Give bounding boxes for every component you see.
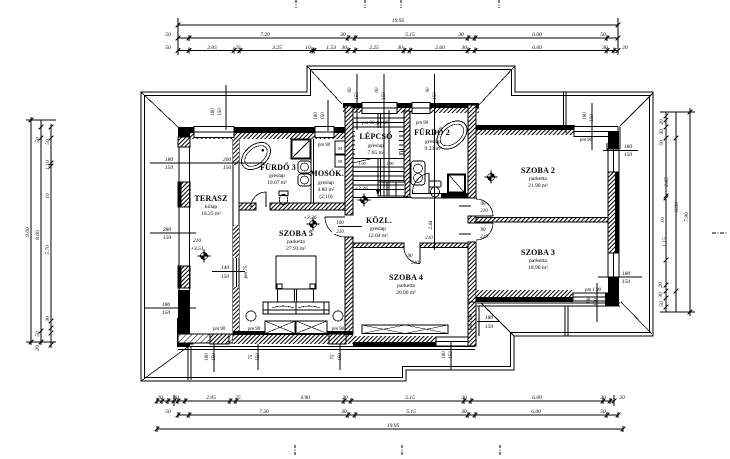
svg-text:parketta: parketta	[287, 239, 305, 245]
svg-text:30: 30	[460, 409, 467, 415]
svg-text:20: 20	[619, 395, 625, 401]
svg-text:60: 60	[375, 87, 380, 93]
svg-text:6.00: 6.00	[532, 32, 542, 38]
svg-text:20.60 m²: 20.60 m²	[396, 290, 416, 296]
svg-text:50: 50	[35, 137, 41, 143]
svg-text:150: 150	[321, 112, 326, 120]
svg-text:90: 90	[408, 254, 414, 259]
svg-text:SZOBA 4: SZOBA 4	[389, 273, 423, 282]
svg-text:7.20: 7.20	[260, 32, 270, 38]
svg-text:210: 210	[425, 236, 433, 241]
svg-text:30: 30	[339, 32, 346, 38]
svg-text:50: 50	[45, 139, 51, 145]
svg-text:30: 30	[341, 395, 348, 401]
svg-text:150: 150	[212, 353, 217, 361]
svg-text:180: 180	[583, 112, 588, 120]
svg-text:greslap: greslap	[318, 180, 334, 186]
svg-text:LÉPCSŐ: LÉPCSŐ	[359, 131, 392, 141]
svg-text:18.25 m²: 18.25 m²	[201, 211, 221, 217]
svg-text:FÜRDŐ 2: FÜRDŐ 2	[414, 127, 450, 137]
svg-text:SZOBA 2: SZOBA 2	[521, 166, 555, 175]
svg-text:25: 25	[235, 45, 241, 51]
svg-text:10: 10	[660, 217, 666, 223]
svg-text:2.60: 2.60	[435, 45, 445, 51]
svg-text:1.90: 1.90	[387, 161, 394, 166]
svg-text:5.15: 5.15	[405, 32, 415, 38]
svg-text:210: 210	[411, 261, 419, 266]
svg-text:180: 180	[165, 157, 174, 163]
svg-text:1.15: 1.15	[662, 237, 668, 247]
svg-text:30: 30	[658, 292, 664, 299]
svg-text:30: 30	[340, 409, 347, 415]
svg-text:kőlap: kőlap	[205, 204, 217, 210]
svg-text:180: 180	[211, 108, 216, 116]
svg-text:20: 20	[622, 45, 628, 51]
svg-text:7.20: 7.20	[259, 409, 269, 415]
svg-text:6.00: 6.00	[532, 45, 542, 51]
svg-text:+3.51: +3.51	[190, 246, 204, 252]
svg-text:parketta: parketta	[397, 283, 415, 289]
svg-text:2.44: 2.44	[429, 220, 434, 229]
svg-text:180: 180	[314, 112, 319, 120]
svg-text:6.00: 6.00	[531, 409, 541, 415]
svg-text:greslap: greslap	[269, 173, 285, 179]
svg-text:greslap: greslap	[370, 226, 386, 232]
svg-text:150: 150	[355, 92, 360, 100]
svg-text:150: 150	[590, 114, 595, 122]
svg-text:18.90 m²: 18.90 m²	[528, 265, 548, 271]
svg-text:75: 75	[249, 354, 254, 360]
svg-text:50: 50	[165, 32, 171, 38]
svg-text:pm 75: pm 75	[244, 265, 249, 279]
svg-text:2.05: 2.05	[207, 45, 217, 51]
svg-text:1.00: 1.00	[359, 161, 366, 166]
svg-text:pm 90 pm 90: pm 90 pm 90	[361, 121, 388, 126]
svg-text:9.60: 9.60	[25, 227, 31, 237]
svg-text:10.07 m²: 10.07 m²	[267, 180, 287, 186]
svg-text:50: 50	[600, 409, 606, 415]
svg-text:pm 90: pm 90	[212, 327, 226, 332]
svg-text:210: 210	[193, 238, 202, 244]
svg-text:parketta: parketta	[529, 258, 547, 264]
svg-text:M: M	[338, 146, 342, 151]
svg-text:50: 50	[338, 159, 343, 164]
svg-text:200: 200	[223, 157, 232, 163]
svg-text:50: 50	[165, 45, 171, 51]
svg-text:150: 150	[221, 274, 230, 280]
svg-text:10: 10	[305, 45, 311, 51]
svg-text:75: 75	[331, 354, 336, 360]
svg-text:SZOBA 3: SZOBA 3	[521, 248, 555, 257]
svg-text:180: 180	[162, 302, 171, 308]
svg-text:50: 50	[165, 409, 171, 415]
svg-text:150: 150	[594, 298, 599, 306]
svg-text:150: 150	[485, 324, 494, 330]
svg-text:30: 30	[460, 395, 467, 401]
svg-text:90: 90	[426, 87, 431, 93]
svg-text:20: 20	[157, 395, 163, 401]
svg-text:150: 150	[433, 92, 438, 100]
svg-text:3.25: 3.25	[271, 45, 282, 51]
svg-text:150: 150	[165, 165, 174, 171]
svg-text:pm 90: pm 90	[415, 121, 429, 126]
svg-text:8.60: 8.60	[35, 230, 41, 240]
svg-text:2.65: 2.65	[664, 177, 670, 187]
svg-text:50: 50	[659, 140, 665, 146]
svg-text:6.90: 6.90	[674, 202, 680, 212]
svg-text:21.90 m²: 21.90 m²	[528, 183, 548, 189]
svg-text:parketta: parketta	[529, 176, 547, 182]
svg-text:180: 180	[624, 144, 633, 150]
svg-text:60: 60	[348, 87, 353, 93]
svg-text:150: 150	[218, 108, 223, 116]
svg-text:2.05: 2.05	[206, 395, 216, 401]
svg-text:180: 180	[587, 296, 592, 304]
svg-text:20: 20	[659, 119, 665, 125]
svg-text:7.90: 7.90	[684, 212, 690, 222]
svg-text:150: 150	[624, 152, 633, 158]
svg-text:5.15: 5.15	[405, 395, 415, 401]
svg-text:7.65 m²: 7.65 m²	[368, 150, 385, 156]
svg-text:SZOBA 5: SZOBA 5	[279, 229, 313, 238]
svg-text:4.90: 4.90	[300, 394, 310, 401]
svg-text:30: 30	[457, 32, 464, 38]
svg-text:180: 180	[622, 271, 631, 277]
svg-text:12.04 m²: 12.04 m²	[368, 233, 388, 239]
svg-text:1.53: 1.53	[326, 45, 336, 51]
svg-text:90: 90	[481, 202, 487, 207]
svg-text:pm 1.90: pm 1.90	[469, 313, 474, 331]
svg-text:+3.36: +3.36	[354, 186, 368, 192]
svg-text:25: 25	[235, 395, 241, 401]
svg-text:150: 150	[622, 279, 631, 285]
svg-text:5.70: 5.70	[45, 245, 51, 255]
svg-text:150: 150	[338, 353, 343, 361]
svg-text:140: 140	[221, 264, 230, 271]
svg-text:30: 30	[340, 45, 347, 51]
svg-text:FÜRDŐ 3: FÜRDŐ 3	[260, 162, 296, 172]
svg-text:1.10: 1.10	[45, 160, 51, 170]
svg-text:30: 30	[460, 45, 467, 51]
svg-text:19.95: 19.95	[392, 18, 405, 24]
svg-text:30: 30	[601, 45, 608, 51]
svg-text:9.23 m²: 9.23 m²	[425, 146, 442, 152]
svg-text:KÖZL.: KÖZL.	[366, 216, 392, 225]
svg-text:20: 20	[658, 282, 664, 288]
svg-text:10: 10	[45, 193, 51, 199]
svg-text:150: 150	[223, 165, 232, 171]
svg-text:30: 30	[599, 395, 606, 401]
svg-text:greslap: greslap	[425, 139, 441, 145]
svg-text:19.95: 19.95	[387, 423, 400, 429]
svg-text:180: 180	[205, 353, 210, 361]
svg-text:4.80 m²: 4.80 m²	[318, 187, 335, 193]
svg-text:pm 90: pm 90	[331, 327, 345, 332]
svg-text:pm 1.90: pm 1.90	[584, 288, 602, 293]
svg-text:20: 20	[35, 345, 41, 351]
svg-text:MOSÓK.: MOSÓK.	[310, 168, 344, 178]
svg-text:pm 90: pm 90	[579, 138, 593, 143]
svg-text:90: 90	[481, 228, 487, 233]
svg-text:280: 280	[163, 227, 172, 233]
svg-text:150: 150	[449, 351, 454, 359]
svg-text:100: 100	[336, 221, 344, 226]
svg-text:30: 30	[45, 316, 51, 323]
svg-text:50: 50	[659, 301, 665, 307]
svg-text:greslap: greslap	[368, 143, 384, 149]
svg-text:2.25: 2.25	[369, 45, 379, 51]
svg-text:150: 150	[162, 310, 171, 316]
svg-text:30: 30	[172, 395, 179, 401]
svg-text:pm 90: pm 90	[247, 327, 261, 332]
svg-text:50: 50	[35, 331, 41, 337]
svg-text:30: 30	[396, 45, 403, 51]
svg-text:150: 150	[256, 353, 261, 361]
svg-text:50: 50	[600, 32, 606, 38]
svg-text:210: 210	[480, 235, 488, 240]
svg-text:150: 150	[163, 235, 172, 241]
svg-text:210: 210	[480, 209, 488, 214]
svg-text:30: 30	[659, 129, 665, 136]
svg-text:5.15: 5.15	[406, 409, 416, 415]
svg-text:150: 150	[382, 92, 387, 100]
svg-text:pm 90: pm 90	[317, 143, 331, 148]
svg-text:+3.36: +3.36	[303, 215, 317, 221]
svg-text:27.93 m²: 27.93 m²	[286, 246, 306, 252]
svg-text:TERASZ: TERASZ	[194, 194, 227, 203]
svg-text:(2.10): (2.10)	[319, 193, 332, 200]
svg-text:210: 210	[336, 230, 344, 235]
svg-text:180: 180	[485, 315, 494, 321]
svg-text:6.00: 6.00	[532, 395, 542, 401]
svg-text:180: 180	[442, 351, 447, 359]
